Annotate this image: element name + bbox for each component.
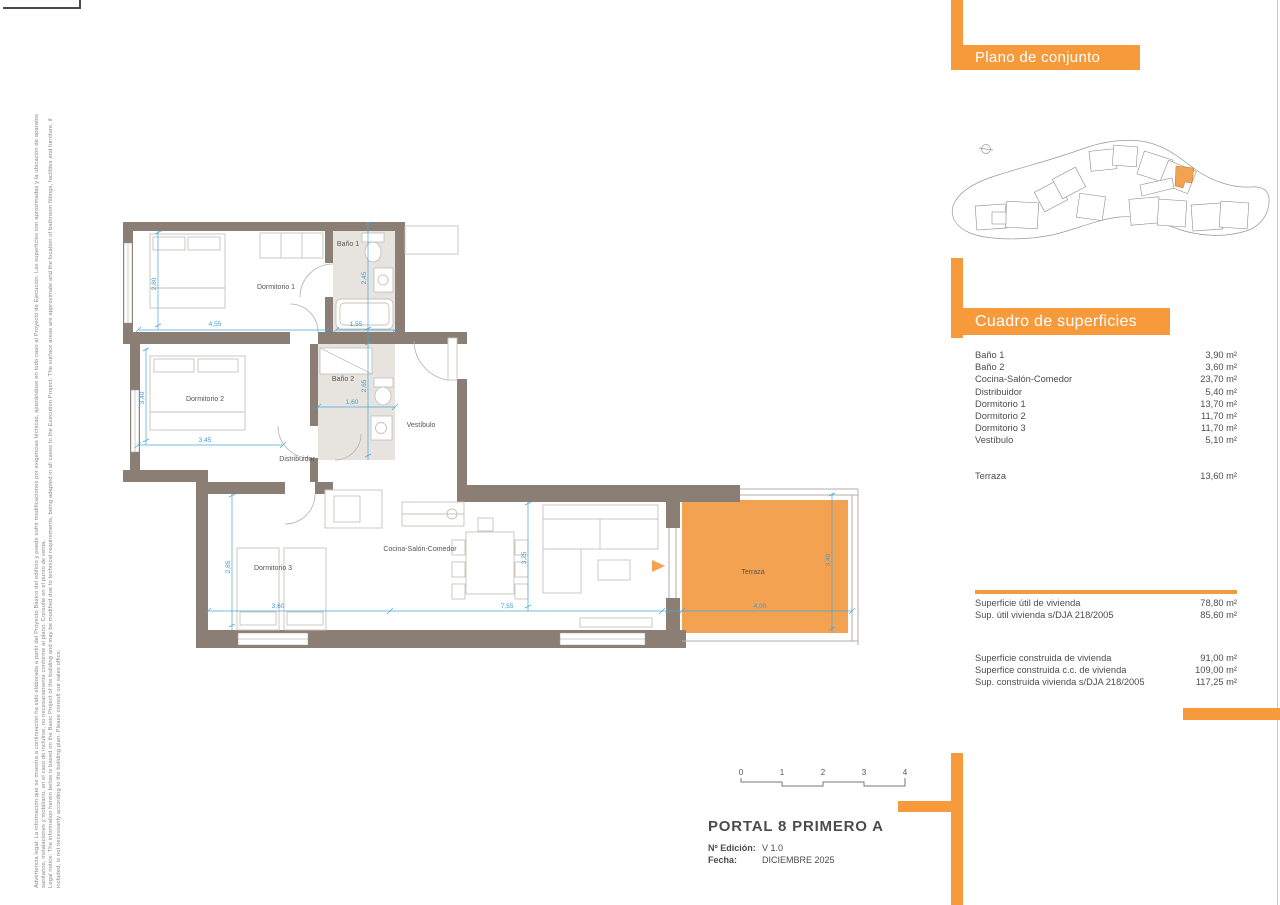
orange-rule (975, 590, 1237, 594)
terrace-floor (682, 500, 848, 633)
table-row: Superficie construida de vivienda91,00 m… (975, 652, 1237, 664)
stair-landing (405, 226, 458, 254)
date-value: DICIEMBRE 2025 (762, 854, 835, 866)
room-label-cocina: Cocina-Salón-Comedor (383, 546, 457, 553)
scale-tick-1: 1 (780, 768, 785, 777)
site-plan-map (950, 125, 1280, 245)
room-label-dormitorio2: Dormitorio 2 (186, 396, 224, 403)
dim-terraza-width: 4,00 (754, 603, 767, 610)
site-plan-title: Plano de conjunto (975, 49, 1100, 66)
table-row: Sup. construida vivienda s/DJA 218/20051… (975, 676, 1237, 688)
dim-bano2-width: 1,60 (346, 399, 359, 406)
plan-sheet: Advertencia legal: La información que se… (0, 0, 1280, 905)
kitchen-counter (402, 502, 464, 526)
scale-tick-0: 0 (739, 768, 744, 777)
accent-bar-top (951, 0, 963, 70)
table-row: Cocina-Salón-Comedor23,70 m² (975, 373, 1237, 385)
edition-row: Nº Edición: V 1.0 (708, 842, 884, 854)
table-row: Distribuidor5,40 m² (975, 386, 1237, 398)
dim-bano1-height: 2,45 (361, 271, 368, 284)
legal-line-es-2: sanitarios, instalaciones y mobiliario, … (41, 43, 48, 888)
site-plan-banner: Plano de conjunto (963, 45, 1140, 70)
dim-dorm1-width: 4,55 (209, 321, 222, 328)
scale-tick-4: 4 (903, 768, 908, 777)
scale-tick-2: 2 (821, 768, 826, 777)
corner-mark-vertical (79, 0, 81, 9)
room-label-vestibulo: Vestíbulo (407, 422, 436, 429)
compass-icon (979, 145, 993, 154)
room-label-distribuidor: Distribuidor (279, 456, 315, 463)
terraza-row: Terraza13,60 m² (975, 470, 1237, 482)
built-area-totals: Superficie construida de vivienda91,00 m… (975, 652, 1237, 689)
edition-label: Nº Edición: (708, 842, 762, 854)
room-label-bano1: Baño 1 (337, 241, 359, 248)
useful-area-totals: Superficie útil de vivienda78,80 m² Sup.… (975, 597, 1237, 621)
legal-disclaimer: Advertencia legal: La información que se… (34, 43, 63, 888)
surfaces-title: Cuadro de superficies (975, 313, 1137, 331)
dim-dorm1-height: 2,80 (151, 277, 158, 290)
date-label: Fecha: (708, 854, 762, 866)
floor-plan: 4,55 1,55 3,45 1,60 3,60 7,55 4,00 2,80 … (115, 212, 870, 657)
table-row: Sup. útil vivienda s/DJA 218/200585,60 m… (975, 609, 1237, 621)
table-row: Superficie útil de vivienda78,80 m² (975, 597, 1237, 609)
accent-bar-bottom (951, 753, 963, 905)
room-label-dormitorio1: Dormitorio 1 (257, 284, 295, 291)
table-row: Vestíbulo5,10 m² (975, 434, 1237, 446)
dim-salon-height: 3,25 (521, 551, 528, 564)
date-row: Fecha: DICIEMBRE 2025 (708, 854, 884, 866)
unit-title: PORTAL 8 PRIMERO A (708, 818, 884, 835)
table-row: Dormitorio 211,70 m² (975, 410, 1237, 422)
dim-dorm3-width: 3,60 (272, 603, 285, 610)
surfaces-table: Baño 13,90 m² Baño 23,60 m² Cocina-Salón… (975, 349, 1237, 447)
edition-value: V 1.0 (762, 842, 783, 854)
table-row: Baño 13,90 m² (975, 349, 1237, 361)
dim-dorm2-height: 3,40 (139, 391, 146, 404)
legal-line-en-2: included, is not necessarily according t… (56, 43, 63, 888)
title-block: PORTAL 8 PRIMERO A Nº Edición: V 1.0 Fec… (708, 818, 884, 866)
table-row: Dormitorio 113,70 m² (975, 398, 1237, 410)
table-row: Dormitorio 311,70 m² (975, 422, 1237, 434)
scale-tick-3: 3 (862, 768, 867, 777)
table-row: Superfice construida c.c. de vivienda109… (975, 664, 1237, 676)
legal-line-en-1: Legal notice: The information herein bel… (48, 43, 55, 888)
accent-bar-mid-right (1183, 708, 1280, 720)
table-row: Baño 23,60 m² (975, 361, 1237, 373)
room-label-terraza: Terraza (741, 569, 764, 576)
corner-mark-horizontal (3, 7, 80, 9)
legal-line-es-1: Advertencia legal: La información que se… (34, 43, 41, 888)
accent-bar-stub (898, 801, 953, 812)
accent-bar-surfaces (951, 258, 963, 338)
dim-dorm2-width: 3,45 (199, 437, 212, 444)
dim-bano1-width: 1,55 (350, 321, 363, 328)
dim-bano2-height: 2,65 (361, 379, 368, 392)
room-label-dormitorio3: Dormitorio 3 (254, 565, 292, 572)
dim-terraza-height: 3,40 (825, 553, 832, 566)
dim-salon-width: 7,55 (501, 603, 514, 610)
surfaces-banner: Cuadro de superficies (963, 308, 1170, 335)
scale-bar: 0 1 2 3 4 (725, 760, 925, 800)
entrance-door-leaf (448, 338, 457, 380)
shaft-closet (325, 490, 382, 528)
dim-dorm3-height: 2,85 (225, 560, 232, 573)
room-label-bano2: Baño 2 (332, 376, 354, 383)
entrance-arrow-icon (652, 560, 665, 572)
